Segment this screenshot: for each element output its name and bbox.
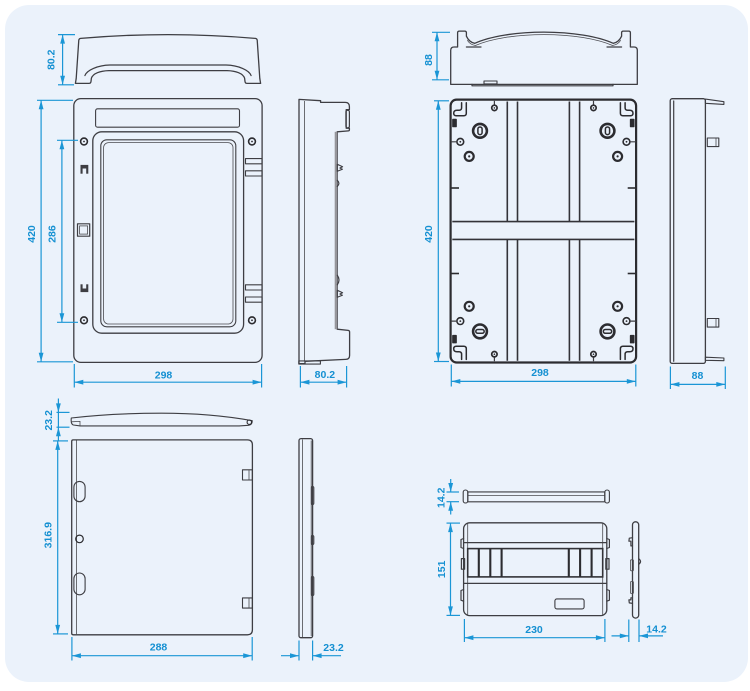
svg-text:151: 151: [436, 560, 448, 578]
svg-text:420: 420: [423, 225, 435, 243]
svg-text:23.2: 23.2: [323, 642, 344, 654]
svg-text:286: 286: [46, 225, 58, 243]
svg-text:298: 298: [155, 369, 173, 381]
svg-text:288: 288: [150, 641, 168, 653]
svg-text:80.2: 80.2: [46, 49, 58, 70]
svg-text:14.2: 14.2: [646, 623, 667, 635]
svg-text:88: 88: [692, 370, 704, 382]
svg-text:14.2: 14.2: [436, 487, 448, 508]
svg-text:88: 88: [423, 54, 435, 66]
svg-text:298: 298: [531, 367, 549, 379]
svg-text:230: 230: [525, 624, 543, 636]
svg-text:80.2: 80.2: [315, 369, 336, 381]
svg-text:316.9: 316.9: [43, 522, 55, 548]
svg-text:23.2: 23.2: [43, 410, 55, 431]
svg-text:420: 420: [26, 225, 38, 243]
